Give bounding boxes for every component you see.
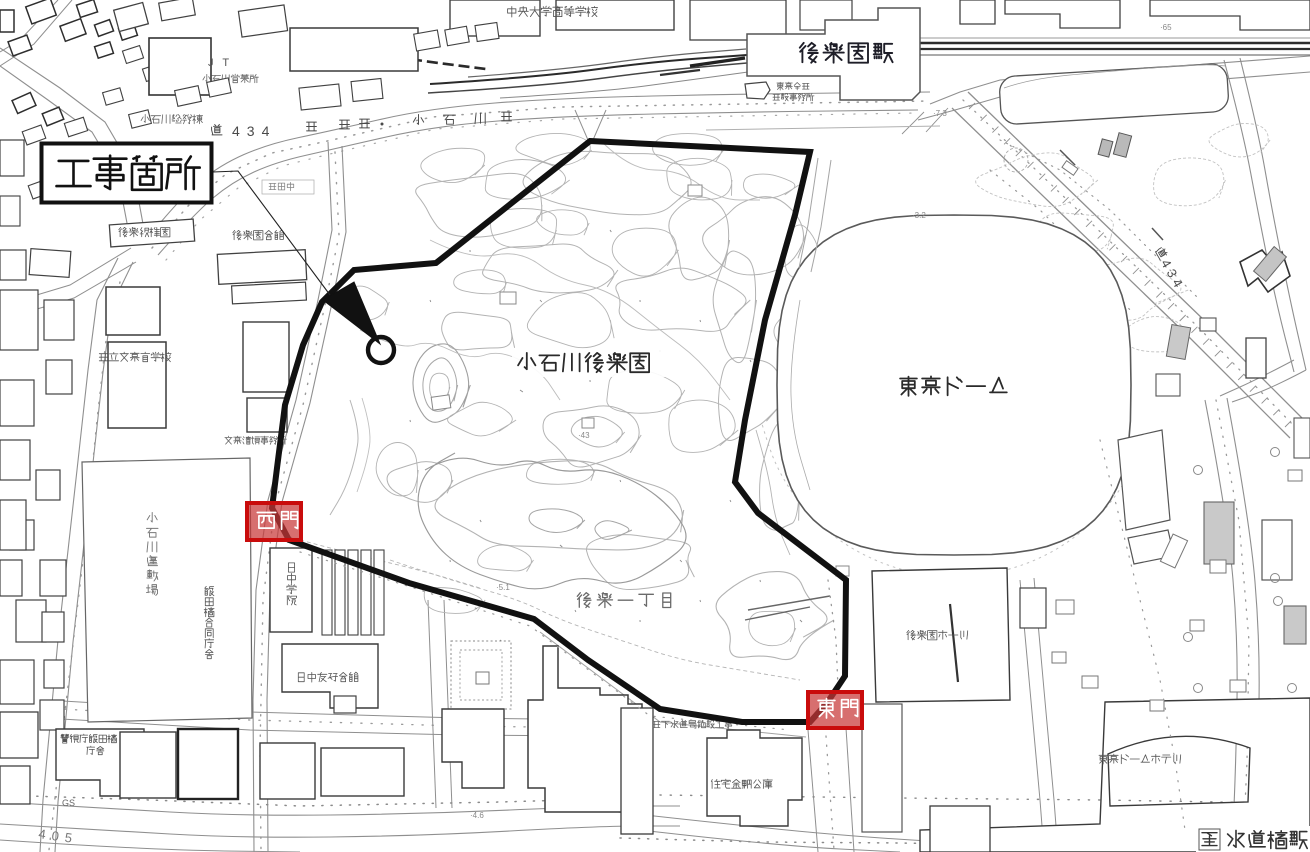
svg-text:·4.6: ·4.6 [470,811,484,820]
svg-text:434: 434 [232,123,276,139]
svg-text:·43: ·43 [578,431,590,440]
svg-text:·5.1: ·5.1 [496,583,510,592]
svg-text:GS: GS [62,798,75,808]
svg-text:J T: J T [208,57,232,69]
svg-text:·3.2: ·3.2 [912,211,926,220]
svg-text:·7.3: ·7.3 [933,109,947,118]
svg-text:·65: ·65 [1160,23,1172,32]
